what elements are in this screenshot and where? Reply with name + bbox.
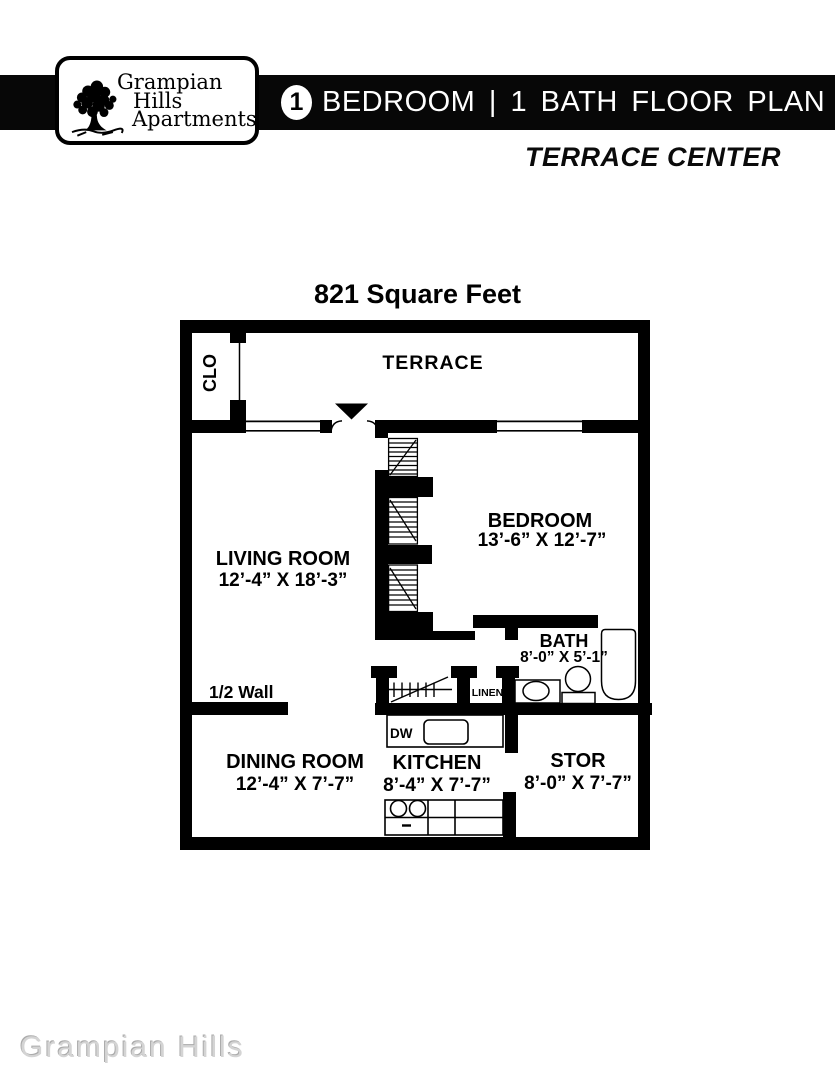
logo-text: Grampian Hills Apartments (117, 73, 257, 129)
bath-sink-basin-icon (523, 682, 549, 701)
room-label-bedroom: BEDROOM (488, 510, 592, 532)
room-dims-stor: 8’-0” X 7’-7” (524, 773, 632, 794)
half-wall-label: 1/2 Wall (209, 682, 274, 702)
flyer-page: Grampian Hills Apartments 1 BEDROOM | 1 … (0, 0, 835, 1080)
stove-burner-icon (391, 801, 407, 817)
stove-burner-icon (410, 801, 426, 817)
room-label-living: LIVING ROOM (216, 548, 350, 570)
logo-line-3: Apartments (132, 110, 257, 129)
apartment-logo: Grampian Hills Apartments (55, 56, 259, 145)
closet-rod-icon (386, 677, 452, 702)
room-label-kitchen: KITCHEN (393, 752, 482, 774)
building-name: TERRACE CENTER (525, 142, 781, 173)
stairs-icon (389, 439, 418, 612)
room-label-clo: CLO (200, 354, 220, 392)
entry-door (331, 404, 378, 433)
room-label-bath: BATH (540, 631, 589, 651)
room-label-dining: DINING ROOM (226, 751, 364, 773)
room-label-stor: STOR (550, 750, 606, 772)
toilet-bowl-icon (566, 667, 591, 692)
bedroom-count-badge: 1 (281, 85, 312, 120)
linen-label: LINEN (472, 687, 504, 699)
kitchen-sink-icon (424, 720, 468, 744)
floor-plan: TERRACE CLO BEDROOM 13’-6” X 12’-7” LIVI… (160, 255, 680, 880)
room-dims-kitchen: 8’-4” X 7’-7” (383, 775, 491, 796)
room-label-terrace: TERRACE (382, 352, 483, 374)
room-dims-bath: 8’-0” X 5’-1” (520, 649, 608, 666)
dishwasher-label: DW (390, 726, 413, 741)
plan-type-title: BEDROOM | 1 BATH FLOOR PLAN (322, 75, 825, 130)
room-dims-living: 12’-4” X 18’-3” (219, 570, 348, 591)
toilet-tank-icon (562, 693, 595, 704)
room-dims-dining: 12’-4” X 7’-7” (236, 774, 354, 795)
room-dims-bedroom: 13’-6” X 12’-7” (478, 530, 607, 551)
watermark: Grampian Hills (20, 1031, 245, 1065)
